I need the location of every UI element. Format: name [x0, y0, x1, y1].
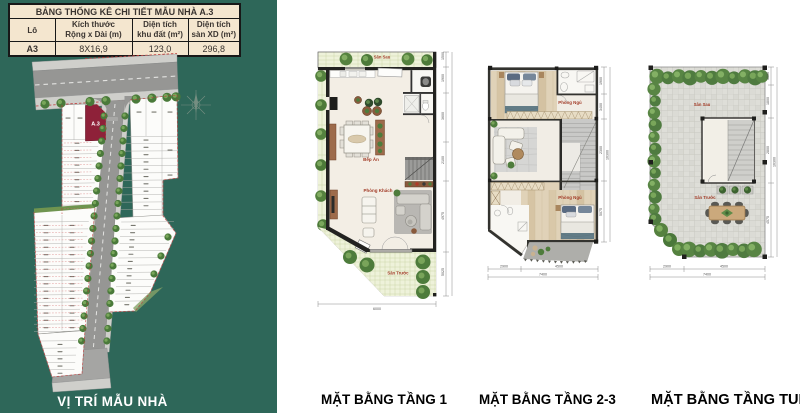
svg-text:Sân Sau: Sân Sau	[694, 102, 711, 107]
svg-text:2900: 2900	[663, 265, 671, 269]
svg-text:4575: 4575	[766, 216, 770, 224]
svg-text:Phòng Ngủ: Phòng Ngủ	[558, 100, 582, 105]
svg-text:2800: 2800	[766, 146, 770, 154]
svg-text:3600: 3600	[441, 112, 445, 120]
svg-text:7400: 7400	[703, 273, 711, 277]
svg-text:Sân Sau: Sân Sau	[374, 55, 391, 60]
svg-text:2900: 2900	[500, 265, 508, 269]
svg-text:1900: 1900	[599, 77, 603, 85]
svg-text:A.3: A.3	[91, 122, 100, 128]
svg-text:2100: 2100	[441, 156, 445, 164]
svg-text:6000: 6000	[373, 307, 381, 311]
svg-text:4975: 4975	[441, 212, 445, 220]
svg-text:2300: 2300	[599, 146, 603, 154]
svg-text:Bếp Ăn: Bếp Ăn	[363, 156, 379, 162]
svg-text:3400: 3400	[599, 103, 603, 111]
svg-text:1800: 1800	[766, 97, 770, 105]
svg-text:4500: 4500	[720, 265, 728, 269]
svg-text:Sân Trước: Sân Trước	[387, 271, 409, 276]
svg-text:5075: 5075	[599, 208, 603, 216]
svg-text:Sân Trước: Sân Trước	[694, 195, 716, 200]
svg-text:7400: 7400	[539, 273, 547, 277]
svg-text:1900: 1900	[441, 74, 445, 82]
svg-text:1500: 1500	[441, 52, 445, 60]
svg-text:1500: 1500	[766, 72, 770, 80]
svg-text:Phòng Ngủ: Phòng Ngủ	[558, 195, 582, 200]
svg-text:4500: 4500	[555, 265, 563, 269]
svg-text:16300: 16300	[773, 157, 777, 167]
svg-text:5025: 5025	[441, 268, 445, 276]
svg-text:16300: 16300	[606, 150, 610, 160]
svg-text:Phòng Khách: Phòng Khách	[364, 188, 393, 193]
